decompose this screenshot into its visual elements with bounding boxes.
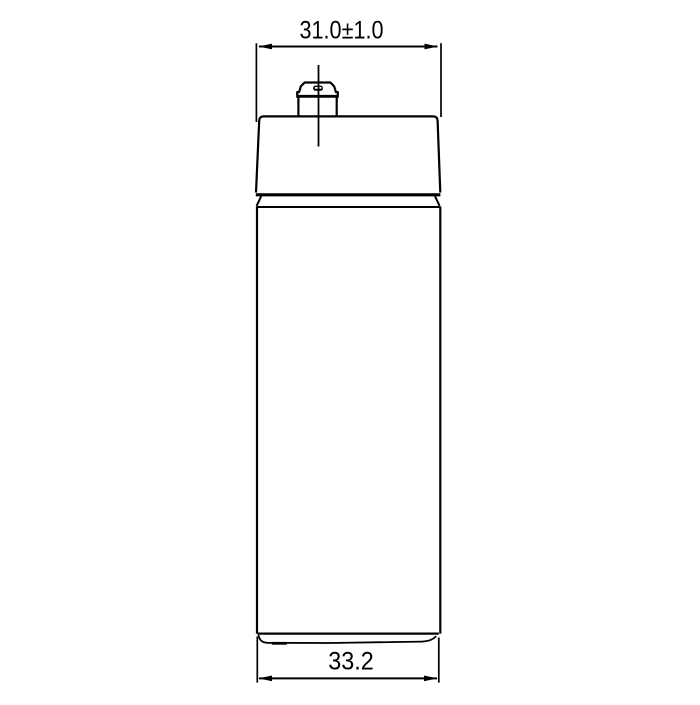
svg-text:31.0±1.0: 31.0±1.0	[300, 17, 384, 45]
svg-text:33.2: 33.2	[328, 647, 374, 675]
